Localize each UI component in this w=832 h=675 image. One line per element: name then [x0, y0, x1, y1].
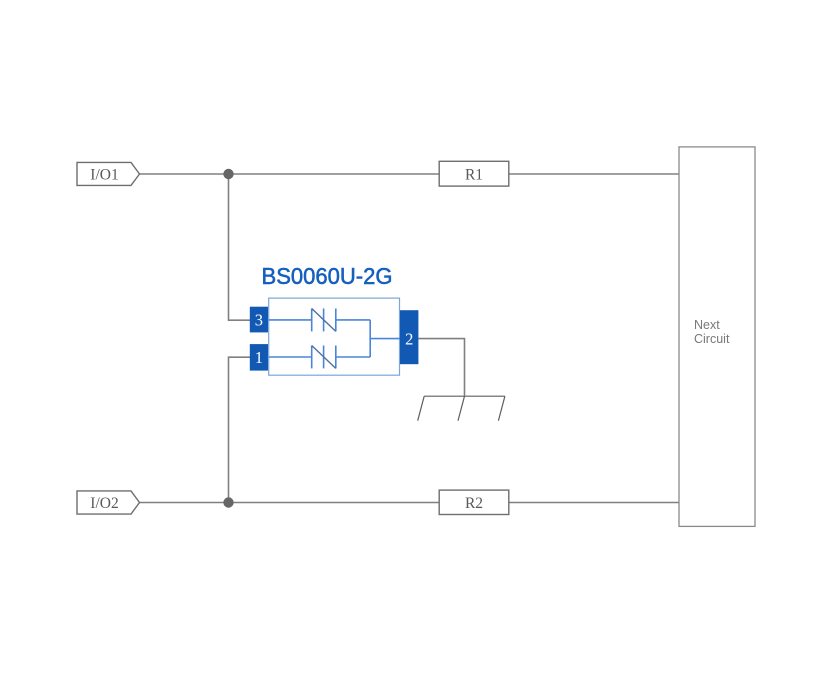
svg-text:R1: R1 [465, 166, 483, 183]
svg-text:I/O2: I/O2 [90, 495, 118, 512]
svg-text:3: 3 [255, 311, 263, 330]
svg-text:Circuit: Circuit [694, 332, 730, 346]
svg-text:2: 2 [405, 329, 413, 348]
svg-text:I/O1: I/O1 [90, 166, 118, 183]
svg-text:1: 1 [255, 348, 263, 367]
svg-text:R2: R2 [465, 495, 483, 512]
svg-text:BS0060U-2G: BS0060U-2G [262, 263, 393, 289]
svg-text:Next: Next [694, 318, 720, 332]
